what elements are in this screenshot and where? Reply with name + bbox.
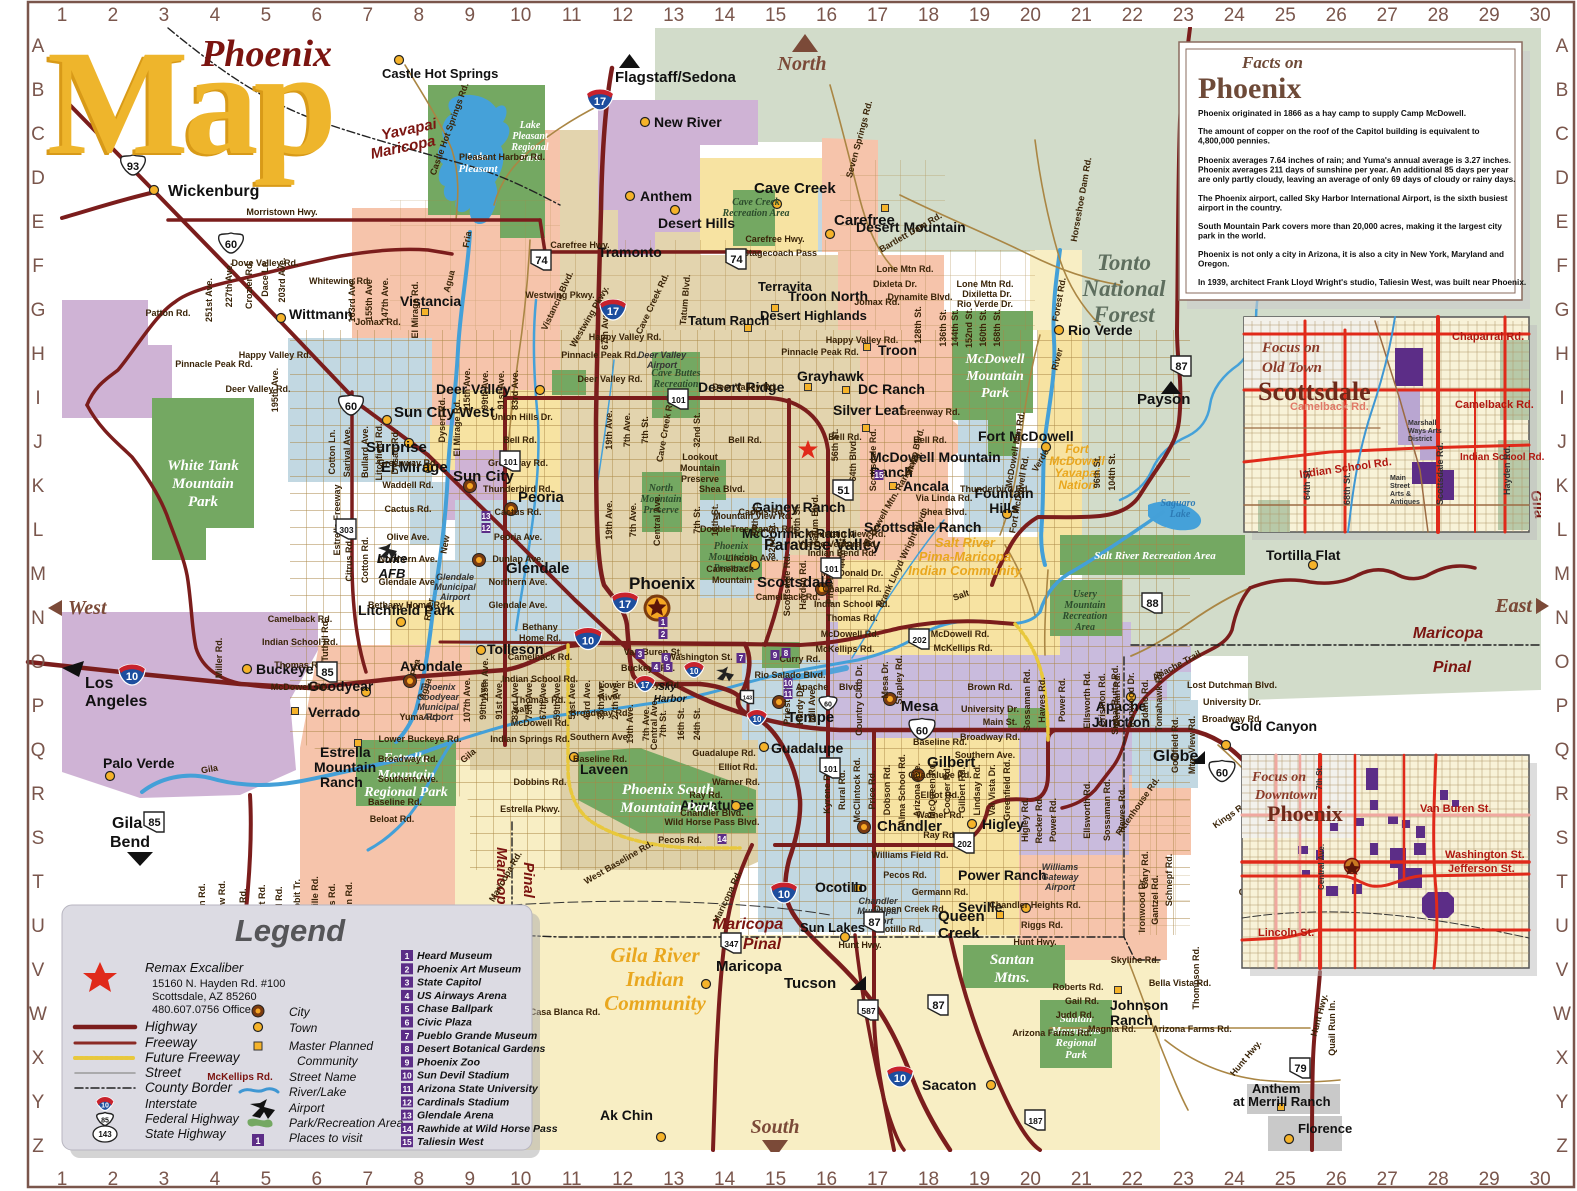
svg-text:Santan: Santan [990, 952, 1034, 968]
svg-text:Sun City: Sun City [453, 468, 514, 485]
svg-text:D: D [31, 168, 45, 189]
svg-text:Scottsdale Rd.: Scottsdale Rd. [782, 554, 792, 617]
svg-text:Crozier Rd.: Crozier Rd. [244, 261, 254, 309]
svg-text:Hardy Dr.: Hardy Dr. [795, 685, 805, 725]
svg-text:Dixiletta Dr.: Dixiletta Dr. [962, 289, 1012, 299]
svg-text:Municipal: Municipal [434, 582, 476, 592]
svg-text:Northern Ave.: Northern Ave. [489, 577, 548, 587]
svg-text:Silver Leaf: Silver Leaf [833, 402, 904, 418]
svg-text:Deer Valley Rd.: Deer Valley Rd. [225, 384, 290, 394]
svg-text:Park: Park [981, 386, 1009, 401]
svg-text:Legend: Legend [235, 913, 346, 948]
svg-text:Mountain: Mountain [171, 476, 234, 492]
svg-text:Gila River: Gila River [610, 943, 700, 967]
svg-text:Morristown Hwy.: Morristown Hwy. [246, 207, 317, 217]
svg-text:Litchfield Rd.: Litchfield Rd. [374, 424, 384, 481]
svg-text:D: D [1555, 168, 1569, 189]
svg-text:H: H [31, 344, 45, 365]
svg-text:El Mirage Rd.: El Mirage Rd. [452, 399, 462, 456]
svg-text:74: 74 [535, 255, 548, 267]
svg-text:15: 15 [402, 1137, 412, 1147]
svg-text:AFB: AFB [378, 566, 406, 581]
svg-text:99th Ave.: 99th Ave. [480, 370, 490, 409]
svg-text:McClintock Rd.: McClintock Rd. [852, 757, 862, 822]
svg-text:20: 20 [1020, 5, 1041, 26]
svg-text:Greenway Rd.: Greenway Rd. [900, 407, 960, 417]
svg-text:Focus on: Focus on [1261, 340, 1320, 356]
svg-text:Magma Rd.: Magma Rd. [1088, 1024, 1136, 1034]
svg-text:87: 87 [868, 917, 880, 929]
svg-text:8: 8 [784, 649, 789, 658]
svg-text:DC Ranch: DC Ranch [858, 381, 925, 397]
svg-text:Patton Rd.: Patton Rd. [146, 308, 191, 318]
svg-text:Idaho Rd.: Idaho Rd. [1140, 680, 1150, 721]
svg-text:91st Ave.: 91st Ave. [496, 371, 506, 410]
svg-text:X: X [1556, 1048, 1569, 1069]
svg-text:136th St.: 136th St. [938, 309, 948, 347]
svg-text:McKellips Rd.: McKellips Rd. [815, 644, 874, 654]
svg-text:18: 18 [918, 5, 939, 26]
svg-text:Sky: Sky [658, 682, 676, 693]
svg-text:Mesa Dr.: Mesa Dr. [880, 661, 890, 698]
svg-text:Saguaro: Saguaro [1160, 498, 1195, 509]
svg-text:26: 26 [1326, 5, 1347, 26]
svg-text:10: 10 [402, 1071, 412, 1081]
svg-text:587: 587 [861, 1006, 875, 1016]
svg-text:7th St.: 7th St. [640, 416, 650, 444]
svg-text:Rawhide at Wild Horse Pass: Rawhide at Wild Horse Pass [417, 1123, 558, 1135]
svg-text:McKellips Rd.: McKellips Rd. [933, 643, 992, 653]
svg-text:Los: Los [85, 675, 114, 692]
svg-text:West: West [68, 597, 108, 619]
svg-text:Municipal: Municipal [417, 702, 459, 712]
svg-text:Baseline Rd.: Baseline Rd. [573, 754, 627, 764]
svg-text:Pinnacle Peak Rd.: Pinnacle Peak Rd. [561, 350, 639, 360]
svg-text:480.607.0756 Office: 480.607.0756 Office [152, 1004, 251, 1016]
svg-text:McQueen Rd.: McQueen Rd. [927, 761, 937, 819]
svg-text:Preserve: Preserve [681, 474, 719, 484]
svg-text:B: B [32, 80, 45, 101]
svg-text:Master Planned: Master Planned [289, 1039, 373, 1053]
svg-text:Ironwood Dr.: Ironwood Dr. [1126, 673, 1136, 728]
svg-text:Pinal: Pinal [520, 862, 537, 899]
svg-text:Country Club Dr.: Country Club Dr. [854, 664, 864, 736]
svg-text:Verrado: Verrado [308, 704, 360, 720]
svg-text:park in the world.: park in the world. [1198, 232, 1266, 241]
svg-text:T: T [1556, 872, 1568, 893]
svg-text:Schnepf Rd.: Schnepf Rd. [1164, 854, 1174, 907]
svg-text:Pinal: Pinal [743, 936, 782, 953]
svg-text:1: 1 [57, 5, 68, 26]
svg-text:Bell Rd.: Bell Rd. [503, 435, 537, 445]
svg-text:6: 6 [312, 5, 323, 26]
svg-text:Florence: Florence [1298, 1121, 1352, 1136]
svg-text:In 1939, architect Frank Lloyd: In 1939, architect Frank Lloyd Wright's … [1198, 278, 1526, 287]
svg-text:Pima-Maricopa: Pima-Maricopa [919, 549, 1011, 564]
svg-text:Main St.: Main St. [983, 717, 1018, 727]
svg-text:Cave Creek: Cave Creek [732, 197, 780, 208]
svg-text:15160 N. Hayden Rd. #100: 15160 N. Hayden Rd. #100 [152, 978, 285, 990]
svg-text:Ray Rd.: Ray Rd. [923, 830, 957, 840]
svg-text:12: 12 [402, 1097, 412, 1107]
svg-text:7: 7 [363, 5, 374, 26]
svg-text:7th St.: 7th St. [1315, 766, 1324, 790]
svg-text:Phoenix: Phoenix [1198, 72, 1301, 105]
svg-text:Chaparral Rd.: Chaparral Rd. [1452, 331, 1524, 343]
svg-text:Chandler: Chandler [858, 896, 898, 906]
svg-text:Goodyear: Goodyear [417, 692, 460, 702]
svg-text:McDowell Rd.: McDowell Rd. [271, 682, 330, 692]
svg-text:15: 15 [875, 471, 884, 480]
svg-text:Glendale Arena: Glendale Arena [417, 1110, 494, 1122]
svg-text:Brown Rd.: Brown Rd. [968, 682, 1013, 692]
svg-text:Mill Ave.: Mill Ave. [807, 687, 817, 723]
svg-text:G: G [31, 300, 46, 321]
svg-text:F: F [1556, 256, 1568, 277]
svg-text:Carefree Hwy.: Carefree Hwy. [550, 240, 609, 250]
svg-text:Cactus Rd.: Cactus Rd. [384, 504, 431, 514]
svg-text:Home Rd.: Home Rd. [519, 633, 561, 643]
svg-text:K: K [32, 476, 45, 497]
svg-text:87: 87 [932, 1000, 944, 1012]
svg-text:Forest: Forest [1092, 302, 1155, 327]
svg-text:Chase Ballpark: Chase Ballpark [417, 1003, 494, 1015]
svg-text:168th St.: 168th St. [992, 309, 1002, 347]
svg-text:Sossaman Rd.: Sossaman Rd. [1102, 779, 1112, 841]
svg-text:17: 17 [641, 681, 650, 690]
svg-text:Street: Street [1390, 483, 1411, 490]
svg-text:9: 9 [464, 5, 475, 26]
svg-text:Dace Ln.: Dace Ln. [260, 259, 270, 297]
svg-text:10: 10 [753, 715, 762, 724]
svg-text:15: 15 [765, 5, 786, 26]
svg-text:Recreation: Recreation [1062, 611, 1108, 622]
svg-text:East: East [1494, 595, 1533, 617]
svg-text:7th St.: 7th St. [692, 506, 702, 534]
svg-text:29: 29 [1479, 5, 1500, 26]
svg-text:4: 4 [405, 991, 410, 1001]
svg-text:Scottsdale Rd.: Scottsdale Rd. [868, 429, 878, 492]
svg-text:17: 17 [619, 599, 631, 611]
svg-text:S: S [1556, 828, 1569, 849]
svg-text:5: 5 [666, 663, 671, 672]
svg-text:85: 85 [148, 817, 160, 829]
svg-text:Deer Valley Rd.: Deer Valley Rd. [577, 374, 642, 384]
svg-text:Civic Plaza: Civic Plaza [417, 1017, 472, 1029]
svg-text:143: 143 [98, 1130, 112, 1139]
svg-text:Riggs Rd.: Riggs Rd. [1021, 920, 1063, 930]
svg-text:79: 79 [1294, 1063, 1306, 1075]
svg-text:75th Ave.: 75th Ave. [524, 680, 534, 719]
svg-text:Gantzel Rd.: Gantzel Rd. [1150, 875, 1160, 925]
svg-text:Airport: Airport [646, 360, 678, 370]
svg-text:K: K [1556, 476, 1569, 497]
svg-text:4: 4 [654, 663, 659, 672]
svg-text:Phoenix: Phoenix [1267, 801, 1343, 826]
svg-text:Payson: Payson [1137, 391, 1190, 408]
svg-text:160th St.: 160th St. [978, 309, 988, 347]
svg-text:Pecos Rd.: Pecos Rd. [883, 870, 927, 880]
svg-text:The amount of copper on the ro: The amount of copper on the roof of the … [1198, 127, 1480, 136]
svg-text:51st Ave.: 51st Ave. [567, 681, 577, 720]
svg-text:4: 4 [210, 5, 221, 26]
svg-text:Usery: Usery [1073, 589, 1097, 600]
svg-text:Bell Rd.: Bell Rd. [728, 435, 762, 445]
svg-text:10: 10 [778, 889, 790, 901]
svg-text:Stapley Rd.: Stapley Rd. [894, 655, 904, 704]
svg-text:Airport: Airport [439, 592, 471, 602]
svg-text:Mtn. View Rd.: Mtn. View Rd. [1187, 716, 1197, 774]
svg-text:Dysart Rd.: Dysart Rd. [390, 429, 400, 474]
svg-text:Deer Valley Rd.: Deer Valley Rd. [712, 382, 777, 392]
svg-text:Broadway Rd.: Broadway Rd. [378, 754, 438, 764]
svg-text:4,800,000 pennies.: 4,800,000 pennies. [1198, 137, 1270, 146]
svg-text:13: 13 [663, 5, 684, 26]
svg-text:19th Ave.: 19th Ave. [625, 704, 635, 743]
svg-text:M: M [30, 564, 46, 585]
svg-text:143: 143 [743, 696, 752, 702]
svg-text:Taliesin West: Taliesin West [417, 1136, 484, 1148]
svg-text:19th Ave.: 19th Ave. [604, 500, 614, 539]
svg-text:Wild Horse Pass Blvd.: Wild Horse Pass Blvd. [665, 817, 760, 827]
svg-text:Elliot Rd.: Elliot Rd. [719, 762, 758, 772]
svg-text:7th Ave.: 7th Ave. [622, 413, 632, 447]
svg-text:Val Vista Dr.: Val Vista Dr. [987, 764, 997, 815]
svg-text:Washington St.: Washington St. [1445, 849, 1525, 861]
svg-text:7: 7 [405, 1031, 410, 1041]
svg-text:Airport: Airport [288, 1101, 325, 1115]
svg-text:Ocotillo: Ocotillo [815, 879, 867, 895]
svg-text:Oregon.: Oregon. [1198, 260, 1229, 269]
svg-text:South: South [751, 1116, 800, 1138]
svg-text:Alma School Rd.: Alma School Rd. [897, 754, 907, 826]
svg-text:C: C [1555, 124, 1569, 145]
svg-text:Tucson: Tucson [784, 975, 836, 992]
svg-text:Airport: Airport [422, 712, 454, 722]
svg-text:Maricopa: Maricopa [1413, 625, 1483, 642]
svg-text:Pleasant: Pleasant [512, 131, 549, 142]
svg-text:Ellsworth Rd.: Ellsworth Rd. [1082, 671, 1092, 729]
svg-text:Thunderbird Rd.: Thunderbird Rd. [483, 484, 553, 494]
svg-text:14: 14 [714, 5, 736, 26]
svg-text:City: City [289, 1005, 311, 1019]
svg-text:11: 11 [784, 690, 793, 699]
svg-text:North: North [648, 483, 674, 494]
svg-text:Van Buren St.: Van Buren St. [1420, 803, 1492, 815]
svg-text:Broadway Rd.: Broadway Rd. [960, 732, 1020, 742]
svg-text:Pinal: Pinal [1433, 659, 1472, 676]
svg-text:State Highway: State Highway [145, 1127, 226, 1141]
svg-text:Meridian Rd.: Meridian Rd. [1112, 673, 1122, 727]
svg-text:Chandler Blvd.: Chandler Blvd. [680, 808, 744, 818]
svg-text:Jefferson St.: Jefferson St. [1448, 863, 1515, 875]
svg-text:U: U [1555, 916, 1569, 937]
svg-text:85: 85 [321, 667, 333, 679]
svg-text:Crismon Rd.: Crismon Rd. [1097, 673, 1107, 727]
svg-text:Heard Museum: Heard Museum [417, 950, 492, 962]
svg-text:Williams: Williams [1042, 862, 1078, 872]
svg-text:16th St.: 16th St. [710, 504, 720, 537]
svg-text:Lincoln St.: Lincoln St. [1258, 927, 1314, 939]
svg-text:13: 13 [402, 1111, 412, 1121]
svg-text:Ak Chin: Ak Chin [600, 1107, 653, 1123]
svg-text:Via Linda Rd.: Via Linda Rd. [916, 493, 973, 503]
svg-text:43rd Ave.: 43rd Ave. [582, 680, 592, 720]
svg-text:Mountain: Mountain [965, 369, 1024, 384]
svg-text:Tortilla Flat: Tortilla Flat [1266, 547, 1341, 563]
svg-text:163rd Ave.: 163rd Ave. [347, 278, 357, 323]
svg-text:227th Ave.: 227th Ave. [224, 263, 234, 307]
svg-text:Hunt Hwy.: Hunt Hwy. [838, 940, 881, 950]
svg-text:74: 74 [730, 254, 743, 266]
svg-text:Guadalupe Rd.: Guadalupe Rd. [692, 748, 756, 758]
svg-text:Desert Highlands: Desert Highlands [760, 308, 867, 323]
svg-text:L: L [33, 520, 44, 541]
svg-text:Cotton Rd.: Cotton Rd. [360, 537, 370, 583]
svg-text:Deer Valley: Deer Valley [638, 350, 687, 360]
svg-text:68th St.: 68th St. [1342, 472, 1352, 505]
svg-text:Bella Vista Rd.: Bella Vista Rd. [1149, 978, 1211, 988]
svg-text:Harbor: Harbor [654, 694, 688, 705]
svg-text:Phoenix: Phoenix [714, 541, 748, 552]
svg-text:Maricopa: Maricopa [713, 916, 783, 933]
svg-text:Mountain: Mountain [314, 759, 376, 775]
svg-text:Salt River: Salt River [935, 535, 996, 550]
svg-text:X: X [32, 1048, 45, 1069]
svg-text:Estrella Pkwy.: Estrella Pkwy. [500, 804, 560, 814]
svg-text:10: 10 [510, 5, 531, 26]
svg-text:Recker Rd.: Recker Rd. [1034, 796, 1044, 843]
svg-text:Tonto: Tonto [1097, 250, 1151, 275]
svg-text:Castle Hot Springs: Castle Hot Springs [382, 66, 498, 81]
svg-text:64th St.: 64th St. [1302, 467, 1312, 500]
svg-text:10: 10 [690, 667, 699, 676]
svg-text:Main: Main [1390, 475, 1406, 482]
svg-text:Cooper Rd.: Cooper Rd. [942, 766, 952, 815]
svg-text:Phoenix is not only a city in: Phoenix is not only a city in Arizona, i… [1198, 250, 1504, 259]
svg-text:National: National [1081, 276, 1166, 301]
svg-text:Lower Buckeye Rd.: Lower Buckeye Rd. [378, 734, 461, 744]
svg-text:Dunlap Ave.: Dunlap Ave. [492, 554, 543, 564]
svg-text:3: 3 [405, 978, 410, 988]
svg-text:24: 24 [1224, 5, 1246, 26]
svg-text:8: 8 [405, 1044, 410, 1054]
svg-text:O: O [1555, 652, 1570, 673]
svg-text:J: J [1557, 432, 1567, 453]
svg-text:Camelback: Camelback [706, 564, 755, 574]
svg-text:Rio Verde Dr.: Rio Verde Dr. [957, 299, 1013, 309]
svg-text:Mesa: Mesa [901, 698, 939, 715]
svg-text:M: M [1554, 564, 1570, 585]
svg-text:Ways Arts: Ways Arts [1408, 428, 1442, 435]
svg-text:New River: New River [654, 114, 722, 130]
svg-text:19th Ave.: 19th Ave. [604, 410, 614, 449]
svg-text:202: 202 [957, 839, 971, 849]
svg-text:16th St.: 16th St. [676, 708, 686, 741]
svg-text:10: 10 [894, 1073, 906, 1085]
svg-text:187: 187 [1028, 1116, 1042, 1126]
svg-text:3: 3 [638, 650, 643, 659]
svg-text:Pleasant: Pleasant [458, 163, 498, 175]
svg-text:Remax Excaliber: Remax Excaliber [145, 960, 244, 975]
svg-text:8: 8 [414, 5, 425, 26]
svg-text:Roberts Rd.: Roberts Rd. [1052, 982, 1103, 992]
svg-text:El Mirage Rd.: El Mirage Rd. [410, 281, 420, 338]
svg-text:88: 88 [1146, 598, 1158, 610]
svg-text:2: 2 [661, 630, 666, 639]
svg-text:30: 30 [1530, 5, 1551, 26]
svg-text:7th St.: 7th St. [658, 710, 668, 738]
svg-text:Q: Q [1555, 740, 1570, 761]
svg-text:Tuthill Rd.: Tuthill Rd. [320, 618, 330, 661]
svg-text:McDowell Rd.: McDowell Rd. [931, 629, 990, 639]
svg-text:Miller Rd.: Miller Rd. [214, 638, 224, 679]
svg-text:Z: Z [1556, 1136, 1568, 1157]
svg-text:L: L [1557, 520, 1568, 541]
svg-text:144th St.: 144th St. [950, 309, 960, 347]
svg-text:Town: Town [289, 1021, 318, 1035]
svg-text:Dysert Rd.: Dysert Rd. [437, 397, 447, 442]
svg-text:Fort McDowell: Fort McDowell [978, 428, 1074, 444]
svg-text:Glendale: Glendale [436, 572, 474, 582]
svg-text:24th St.: 24th St. [750, 504, 760, 537]
svg-text:South Mountain Park covers mor: South Mountain Park covers more than 20,… [1198, 222, 1502, 231]
svg-text:are only partly cloudy, leavin: are only partly cloudy, leaving an avera… [1198, 175, 1515, 184]
svg-text:2: 2 [405, 964, 410, 974]
svg-text:17: 17 [607, 306, 619, 318]
svg-text:51: 51 [837, 485, 849, 497]
svg-text:Arizona State University: Arizona State University [416, 1083, 539, 1095]
svg-text:H: H [1555, 344, 1569, 365]
svg-text:64th Blvd.: 64th Blvd. [848, 438, 858, 481]
svg-text:Chandler Heights Rd.: Chandler Heights Rd. [989, 900, 1081, 910]
svg-text:Casa Blanca Rd.: Casa Blanca Rd. [530, 1007, 601, 1017]
svg-text:Phoenix averages 7.64 inches o: Phoenix averages 7.64 inches of rain; an… [1198, 156, 1511, 165]
svg-text:G: G [1555, 300, 1570, 321]
svg-text:Phoenix Zoo: Phoenix Zoo [417, 1056, 481, 1068]
svg-text:7: 7 [739, 654, 744, 663]
svg-text:Jomax Rd.: Jomax Rd. [355, 317, 401, 327]
svg-text:N: N [1555, 608, 1569, 629]
svg-text:Camelback Rd.: Camelback Rd. [1290, 401, 1369, 413]
svg-text:State Capitol: State Capitol [417, 977, 482, 989]
svg-text:Camelback Rd.: Camelback Rd. [1455, 399, 1534, 411]
svg-text:C: C [31, 124, 45, 145]
svg-text:Arizona Ave.: Arizona Ave. [912, 763, 922, 817]
svg-text:Mountain: Mountain [1063, 600, 1106, 611]
svg-text:Ray Rd.: Ray Rd. [689, 790, 723, 800]
svg-text:Tatum Ranch: Tatum Ranch [688, 313, 769, 328]
svg-text:6: 6 [664, 654, 669, 663]
svg-text:Van Buren St.: Van Buren St. [624, 647, 683, 657]
svg-text:Ellsworth Rd.: Ellsworth Rd. [1082, 781, 1092, 839]
svg-text:23: 23 [1173, 5, 1194, 26]
svg-text:101: 101 [503, 457, 517, 467]
svg-text:104th St.: 104th St. [1107, 453, 1117, 491]
svg-text:Phoenix: Phoenix [629, 574, 696, 593]
svg-text:Mountain: Mountain [712, 575, 752, 585]
svg-text:14: 14 [718, 835, 727, 844]
svg-text:Olive Ave.: Olive Ave. [387, 532, 430, 542]
svg-text:Phoenix Art Museum: Phoenix Art Museum [417, 963, 521, 975]
svg-text:I: I [1559, 388, 1564, 409]
svg-text:Park: Park [1065, 1049, 1088, 1061]
svg-text:Focus on: Focus on [1251, 770, 1306, 785]
svg-text:7th Ave.: 7th Ave. [628, 503, 638, 537]
svg-text:Beloat Rd.: Beloat Rd. [370, 814, 415, 824]
svg-text:Gail Rd.: Gail Rd. [1065, 996, 1099, 1006]
svg-text:67th Ave.: 67th Ave. [538, 680, 548, 719]
